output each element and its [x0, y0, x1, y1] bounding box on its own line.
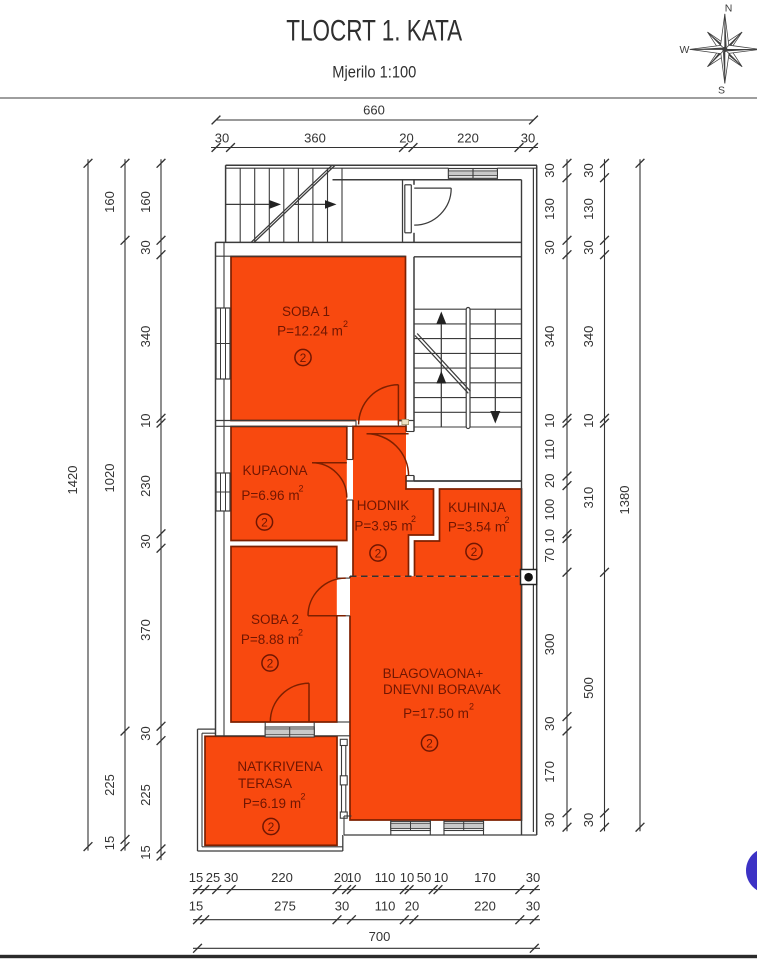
svg-text:30: 30	[335, 899, 349, 914]
svg-text:20: 20	[542, 474, 557, 488]
svg-text:30: 30	[215, 131, 229, 146]
svg-text:30: 30	[581, 163, 596, 177]
svg-text:SOBA 2: SOBA 2	[251, 612, 299, 627]
svg-text:110: 110	[375, 870, 396, 885]
svg-text:2: 2	[300, 792, 305, 802]
svg-text:2: 2	[471, 545, 478, 559]
svg-text:20: 20	[405, 899, 419, 914]
svg-text:10: 10	[542, 413, 557, 427]
svg-text:2: 2	[469, 702, 474, 712]
svg-text:P=3.54 m: P=3.54 m	[448, 520, 506, 535]
svg-text:KUHINJA: KUHINJA	[448, 500, 506, 515]
svg-text:230: 230	[138, 475, 153, 497]
svg-text:Mjerilo 1:100: Mjerilo 1:100	[332, 63, 416, 82]
svg-text:10: 10	[434, 870, 448, 885]
svg-text:15: 15	[189, 870, 203, 885]
svg-text:660: 660	[363, 103, 385, 118]
svg-text:20: 20	[399, 131, 413, 146]
svg-text:30: 30	[138, 240, 153, 254]
svg-text:1380: 1380	[617, 486, 632, 515]
svg-text:275: 275	[274, 899, 296, 914]
svg-text:S: S	[718, 85, 725, 97]
svg-text:2: 2	[298, 484, 303, 494]
svg-text:2: 2	[343, 319, 348, 329]
svg-text:2: 2	[504, 515, 509, 525]
svg-text:HODNIK: HODNIK	[357, 498, 410, 513]
svg-text:2: 2	[261, 515, 268, 529]
svg-text:300: 300	[542, 634, 557, 656]
svg-text:30: 30	[526, 870, 540, 885]
svg-text:NATKRIVENA: NATKRIVENA	[237, 759, 322, 774]
svg-text:2: 2	[267, 656, 274, 670]
svg-text:10: 10	[400, 870, 414, 885]
svg-text:1420: 1420	[65, 466, 80, 495]
svg-text:15: 15	[189, 899, 203, 914]
svg-text:30: 30	[542, 240, 557, 254]
svg-text:30: 30	[138, 534, 153, 548]
svg-text:N: N	[725, 3, 733, 15]
svg-text:360: 360	[304, 131, 326, 146]
svg-text:225: 225	[138, 784, 153, 806]
svg-text:30: 30	[138, 726, 153, 740]
svg-text:2: 2	[411, 514, 416, 524]
svg-text:110: 110	[542, 439, 557, 460]
svg-text:340: 340	[138, 326, 153, 348]
svg-text:310: 310	[581, 487, 596, 509]
svg-text:160: 160	[102, 191, 117, 213]
svg-text:340: 340	[581, 326, 596, 348]
svg-text:W: W	[680, 44, 690, 56]
svg-text:P=6.19 m: P=6.19 m	[243, 796, 301, 811]
svg-text:30: 30	[526, 899, 540, 914]
svg-text:SOBA 1: SOBA 1	[282, 304, 330, 319]
svg-text:700: 700	[369, 929, 391, 944]
svg-text:TERASA: TERASA	[238, 776, 292, 791]
svg-text:30: 30	[581, 240, 596, 254]
svg-text:30: 30	[542, 163, 557, 177]
svg-text:220: 220	[457, 131, 479, 146]
svg-text:P=17.50 m: P=17.50 m	[403, 706, 469, 721]
svg-text:30: 30	[521, 131, 535, 146]
svg-text:TLOCRT 1. KATA: TLOCRT 1. KATA	[286, 15, 462, 48]
svg-text:70: 70	[542, 548, 557, 562]
svg-text:220: 220	[474, 899, 496, 914]
svg-text:340: 340	[542, 326, 557, 348]
svg-text:BLAGOVAONA+: BLAGOVAONA+	[383, 666, 484, 681]
svg-text:30: 30	[581, 813, 596, 827]
svg-text:2: 2	[298, 628, 303, 638]
svg-text:2: 2	[300, 351, 307, 365]
svg-text:160: 160	[138, 191, 153, 213]
svg-text:10: 10	[581, 413, 596, 427]
svg-text:15: 15	[102, 836, 117, 850]
svg-text:P=6.96 m: P=6.96 m	[241, 488, 299, 503]
svg-text:KUPAONA: KUPAONA	[242, 463, 307, 478]
svg-text:P=8.88 m: P=8.88 m	[241, 632, 299, 647]
svg-text:100: 100	[542, 499, 557, 521]
svg-text:30: 30	[224, 870, 238, 885]
svg-text:225: 225	[102, 774, 117, 796]
svg-text:10: 10	[347, 870, 361, 885]
svg-text:2: 2	[375, 546, 382, 560]
svg-text:170: 170	[474, 870, 496, 885]
svg-text:130: 130	[581, 198, 596, 220]
svg-text:30: 30	[542, 813, 557, 827]
svg-text:P=3.95 m: P=3.95 m	[354, 519, 412, 534]
svg-text:2: 2	[426, 736, 433, 750]
svg-text:P=12.24 m: P=12.24 m	[277, 324, 343, 339]
svg-text:30: 30	[542, 717, 557, 731]
svg-text:50: 50	[417, 870, 431, 885]
svg-text:10: 10	[138, 413, 153, 427]
svg-text:2: 2	[268, 820, 275, 834]
svg-text:25: 25	[206, 870, 220, 885]
svg-text:10: 10	[542, 529, 557, 543]
svg-text:15: 15	[138, 845, 153, 859]
svg-text:500: 500	[581, 677, 596, 699]
svg-text:220: 220	[271, 870, 293, 885]
svg-text:110: 110	[375, 899, 396, 914]
svg-text:DNEVNI BORAVAK: DNEVNI BORAVAK	[383, 682, 501, 697]
svg-text:370: 370	[138, 619, 153, 641]
svg-text:1020: 1020	[102, 464, 117, 493]
svg-text:130: 130	[542, 198, 557, 220]
svg-text:170: 170	[542, 761, 557, 783]
